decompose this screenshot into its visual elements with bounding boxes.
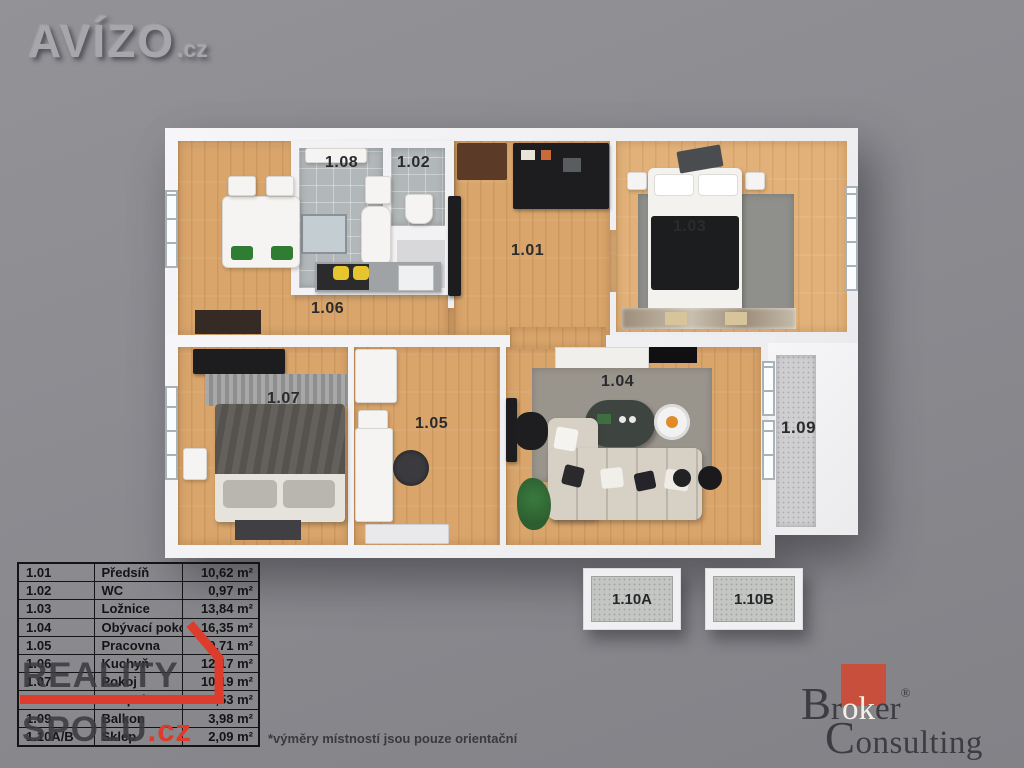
tv-sideboard [555, 347, 649, 370]
side-table [698, 466, 722, 490]
room-label-1-02: 1.02 [397, 154, 430, 172]
room-name: WC [94, 582, 182, 600]
shower [301, 214, 347, 254]
nightstand [627, 172, 647, 190]
desk [355, 428, 393, 522]
reality-tld: .cz [148, 713, 192, 748]
tv-panel [649, 347, 697, 363]
room-area: 0,97 m² [182, 582, 259, 600]
table-row: 1.02WC0,97 m² [18, 582, 259, 600]
table-row: 1.03Ložnice13,84 m² [18, 600, 259, 618]
room-label-1-03: 1.03 [673, 218, 706, 236]
avizo-wordmark: AVÍZO [28, 14, 175, 68]
room-label-1-07: 1.07 [267, 390, 300, 408]
bedroom2-rug [235, 520, 301, 540]
room-number: 1.03 [18, 600, 94, 618]
avizo-logo: AVÍZO .cz [28, 14, 208, 68]
fruit-bowl [666, 416, 678, 428]
reality-line1: REALITY [22, 656, 179, 696]
wardrobe-lamp [725, 312, 747, 325]
coffee-table-cup [619, 416, 626, 423]
window-living-balcony-1 [762, 361, 775, 416]
room-name: Předsíň [94, 563, 182, 582]
room-label-1-05: 1.05 [415, 415, 448, 433]
sofa-pillow-white [553, 426, 578, 451]
reality-line2-word: SPOLU [22, 710, 148, 749]
floor-plan: 1.08 1.02 1.01 1.03 1.06 1.07 1.05 1.04 … [165, 128, 860, 558]
opening-kitchen-hall [448, 308, 454, 335]
footnote: *výměry místností jsou pouze orientační [268, 731, 517, 746]
toilet [405, 194, 433, 224]
window-bedroom2 [165, 386, 178, 480]
door-leaf-open [365, 524, 449, 544]
bed-2-blanket [215, 404, 345, 474]
room-area: 10,62 m² [182, 563, 259, 582]
kitchen-cabinet-dark [195, 310, 261, 334]
balcony-floor [776, 355, 816, 527]
table-row: 1.01Předsíň10,62 m² [18, 563, 259, 582]
pillow-gray [223, 480, 277, 508]
nightstand [745, 172, 765, 190]
sofa-pillow-white [600, 467, 624, 489]
room-number: 1.02 [18, 582, 94, 600]
armchair-black [514, 412, 548, 450]
glass-wardrobe [622, 308, 796, 329]
reality-line2: SPOLU.cz [22, 710, 192, 750]
pillow-gray [283, 480, 335, 508]
pouf [673, 469, 691, 487]
office-chair [393, 450, 429, 486]
coffee-table-book [597, 414, 611, 424]
window-bedroom1 [845, 186, 858, 291]
pillow [654, 174, 694, 196]
room-number: 1.01 [18, 563, 94, 582]
reality-spolu-logo: REALITY SPOLU.cz [18, 618, 233, 753]
opening-hall-living [510, 327, 606, 349]
room-label-1-04: 1.04 [601, 373, 634, 391]
dining-chair [228, 176, 256, 196]
broker-cap-c: C [825, 713, 856, 763]
avizo-tld: .cz [177, 36, 208, 63]
tv-bedroom2 [193, 349, 285, 374]
entry-door [457, 143, 507, 180]
room-label-1-01: 1.01 [511, 242, 544, 260]
dining-chair-green [231, 246, 253, 260]
storage-label-110b: 1.10B [713, 576, 795, 622]
washing-machine [365, 176, 391, 204]
bathtub [361, 206, 391, 266]
sink-bowl-yellow [333, 266, 349, 280]
dining-chair [266, 176, 294, 196]
storage-box-110b: 1.10B [705, 568, 803, 630]
plant [517, 478, 551, 530]
broker-registered-mark: ® [901, 685, 911, 700]
pillow [698, 174, 738, 196]
room-label-1-09: 1.09 [781, 418, 816, 438]
dish-stack [521, 150, 535, 160]
nightstand-2 [183, 448, 207, 480]
dish-stack-2 [541, 150, 551, 160]
window-living-balcony-2 [762, 420, 775, 480]
window-kitchen [165, 190, 178, 268]
room-area: 13,84 m² [182, 600, 259, 618]
study-cabinet [355, 349, 397, 403]
stove [563, 158, 581, 172]
room-label-1-08: 1.08 [325, 154, 358, 172]
storage-label-110a: 1.10A [591, 576, 673, 622]
wardrobe-lamp [665, 312, 687, 325]
broker-word2: Consulting [825, 712, 983, 764]
sink-bowl-yellow [353, 266, 369, 280]
opening-hall-bedroom1 [610, 230, 616, 292]
storage-box-110a: 1.10A [583, 568, 681, 630]
hall-shelf [448, 196, 461, 296]
dining-chair-green [271, 246, 293, 260]
broker-consulting-logo: Broker® Consulting [795, 652, 1024, 764]
room-name: Ložnice [94, 600, 182, 618]
kitchen-sink [398, 265, 434, 291]
coffee-table-cup [629, 416, 636, 423]
room-label-1-06: 1.06 [311, 300, 344, 318]
page-background: AVÍZO .cz [0, 0, 1024, 768]
broker-onsulting: onsulting [856, 725, 983, 761]
